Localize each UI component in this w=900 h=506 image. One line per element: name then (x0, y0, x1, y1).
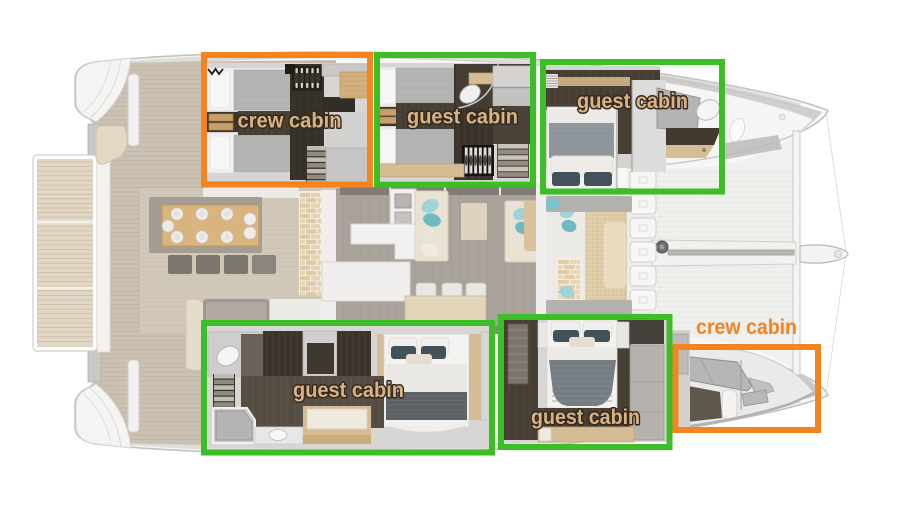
svg-text:guest cabin: guest cabin (531, 405, 640, 429)
svg-text:guest cabin: guest cabin (293, 378, 404, 402)
svg-text:crew cabin: crew cabin (238, 109, 342, 133)
svg-text:guest cabin: guest cabin (577, 89, 688, 113)
svg-text:guest cabin: guest cabin (407, 105, 518, 129)
svg-text:crew cabin: crew cabin (696, 315, 797, 339)
